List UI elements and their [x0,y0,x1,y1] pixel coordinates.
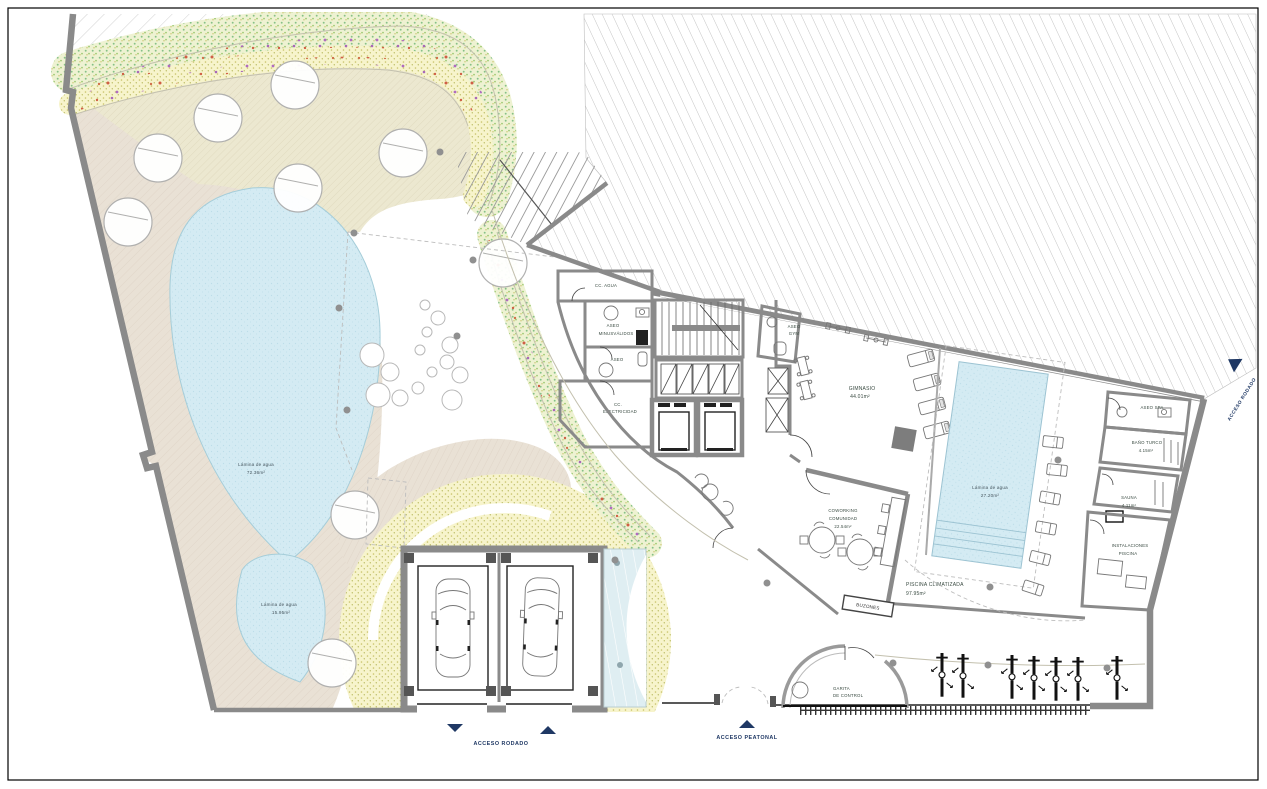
room-label-cc-electricidad-1: CC. [614,402,622,407]
pool-indoor-area: 27.20m² [981,493,1000,498]
installation-shafts [766,368,788,432]
room-label-aseo: ASEO [611,357,624,362]
room-label-cc-agua: CC. AGUA [595,283,617,288]
room-label-coworking-1: COWORKING [828,508,858,513]
arrow-down-icon [447,724,463,732]
room-label-sauna-area: 4.11m² [1122,503,1137,508]
pool-large-area: 72.36m² [247,470,266,475]
garage [404,549,604,713]
bike-racks [932,653,1128,701]
gym-mat [891,426,916,451]
room-label-bano-turco: BAÑO TURCO [1132,440,1163,445]
room-label-aseo-gym-1: ASEO [788,324,801,329]
room-label-instalaciones-1: INSTALACIONES [1112,543,1149,548]
access-rodado-lateral-label: ACCESO RODADO [1226,377,1257,422]
arrow-up-icon [540,726,556,734]
spa-rooms: ASEO SPA BAÑO TURCO 4.15m² SAUNA 4.11m² … [1082,392,1190,610]
room-label-aseo-minusvalidos-1: ASEO [607,323,620,328]
walkway-grate [800,706,1090,715]
room-sauna: SAUNA 4.11m² [1094,468,1178,512]
access-peatonal-label: ACCESO PEATONAL [716,735,777,741]
glass-canopy [604,549,646,707]
pool-small-label: Lámina de agua [261,602,297,607]
room-label-aseo-minusvalidos-2: MINUSVÁLIDOS [599,331,634,336]
room-label-gimnasio: GIMNASIO [849,386,876,392]
elevators [652,400,742,455]
room-aseo: ASEO [585,347,652,381]
room-label-piscina: PISCINA CLIMATIZADA [906,582,964,588]
room-label-bano-turco-area: 4.15m² [1139,448,1154,453]
floor-plan-sheet: CC. AGUA ASEO MINUSVÁLIDOS ASEO CC. ELEC… [0,0,1267,789]
indoor-pool-hall: Lámina de agua 27.20m² PISCINA CLIMATIZA… [870,346,1085,621]
room-label-aseo-spa: ASEO SPA [1140,405,1163,410]
pool-indoor-label: Lámina de agua [972,485,1008,490]
access-peatonal: ACCESO PEATONAL [716,720,777,741]
room-aseo-minusvalidos: ASEO MINUSVÁLIDOS [585,301,652,347]
room-label-garita-1: GARITA [833,686,850,691]
room-label-aseo-gym-2: GYM [789,331,800,336]
room-label-coworking-area: 22.54m² [834,524,852,529]
pool-small-area: 15.95m² [272,610,291,615]
mailboxes: BUZONES [842,595,894,617]
room-label-garita-2: DE CONTROL [833,693,864,698]
lockers [656,360,742,398]
pedestrian-gate [714,687,776,707]
coworking-table [838,534,882,570]
room-label-gimnasio-area: 44.01m² [850,394,870,400]
south-walkway: GARITA DE CONTROL [662,646,1145,715]
room-bano-turco: BAÑO TURCO 4.15m² [1100,427,1186,470]
access-rodado: ACCESO RODADO [447,724,556,747]
gym: GIMNASIO 44.01m² [793,323,951,555]
room-label-piscina-area: 97.95m² [906,591,926,597]
control-booth: GARITA DE CONTROL [783,646,907,708]
room-label-instalaciones-2: PISCINA [1119,551,1138,556]
floor-plan-drawing: CC. AGUA ASEO MINUSVÁLIDOS ASEO CC. ELEC… [0,0,1267,789]
arrow-up-icon [739,720,755,728]
room-label-coworking-2: COMUNIDAD [829,516,857,521]
pool-large-label: Lámina de agua [238,462,274,467]
access-rodado-label: ACCESO RODADO [473,741,528,747]
room-label-sauna: SAUNA [1121,495,1137,500]
